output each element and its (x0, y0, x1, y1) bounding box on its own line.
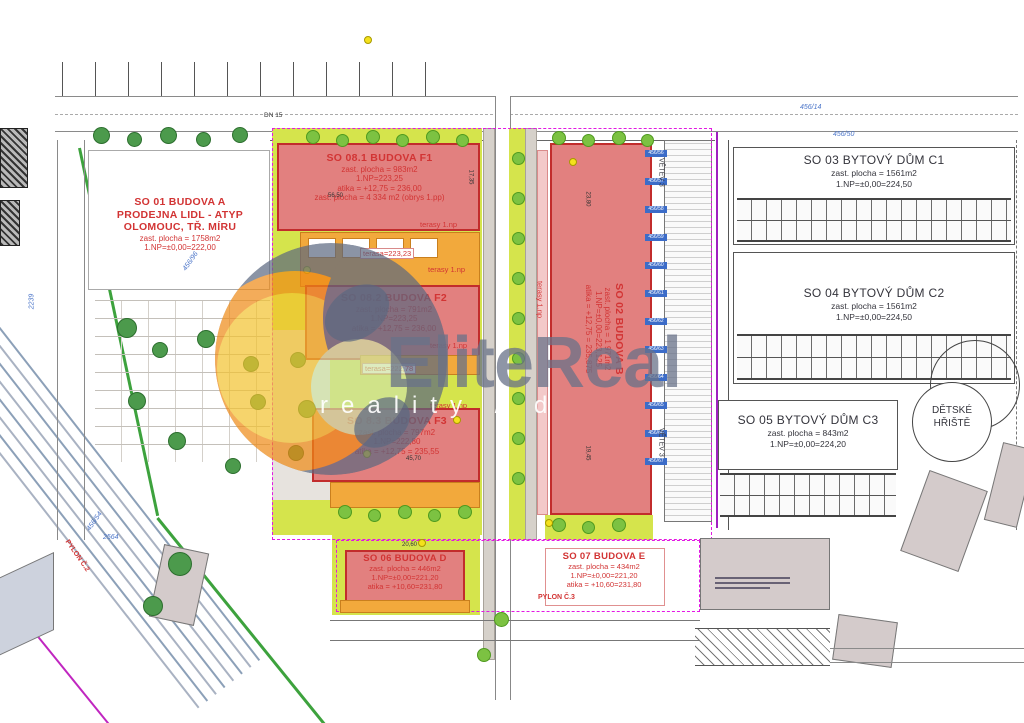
detske-line1: DĚTSKÉ (916, 405, 988, 418)
tree-icon (298, 400, 316, 418)
so07-title: SO 07 BUDOVA E (548, 551, 660, 562)
survey-tick (62, 62, 63, 96)
parcel-label: 456/14 (800, 104, 821, 111)
small-print-note (715, 577, 790, 592)
tree-icon (243, 356, 259, 372)
tree-icon (512, 272, 525, 285)
note-line (715, 587, 770, 589)
label-so07: SO 07 BUDOVA E zast. plocha = 434m2 1.NP… (548, 551, 660, 589)
detske-line2: HŘIŠTĚ (916, 418, 988, 431)
tree-icon (456, 134, 469, 147)
dn15-label: DN 15 (264, 112, 282, 119)
road-line (84, 140, 85, 540)
survey-tick (260, 62, 261, 96)
dimension-label: 19,45 (585, 445, 591, 460)
existing-building (832, 614, 898, 668)
so04-line2: zast. plocha = 1561m2 (740, 301, 1008, 312)
existing-building (984, 442, 1024, 528)
tree-icon (512, 232, 525, 245)
so01-line3: OLOMOUC, TŘ. MÍRU (92, 221, 268, 234)
tree-icon (512, 192, 525, 205)
existing-building (0, 552, 54, 658)
existing-building (0, 128, 28, 188)
survey-tick (95, 62, 96, 96)
survey-tick (161, 62, 162, 96)
tree-icon (366, 130, 380, 144)
existing-building (700, 538, 830, 610)
label-so03: SO 03 BYTOVÝ DŮM C1 zast. plocha = 1561m… (740, 153, 1008, 189)
tree-icon (160, 127, 177, 144)
tree-icon (396, 134, 409, 147)
survey-tick (326, 62, 327, 96)
road-line (55, 96, 1018, 97)
so01-title: SO 01 BUDOVA A (92, 196, 268, 209)
so05-module-strip (720, 473, 896, 517)
tree-icon (232, 127, 248, 143)
road-centerline (55, 114, 1018, 115)
tree-icon (290, 352, 306, 368)
road-line (830, 648, 1024, 649)
parcel-label: 2239 (28, 294, 35, 310)
so04-line3: 1.NP=±0,00=224,50 (740, 312, 1008, 323)
tree-icon (582, 134, 595, 147)
tree-icon (512, 472, 525, 485)
site-plan-canvas: SO 01 BUDOVA A PRODEJNA LIDL - ATYP OLOM… (0, 0, 1024, 723)
tree-icon (196, 132, 211, 147)
road-line (830, 662, 1024, 663)
survey-tick (392, 62, 393, 96)
terrace-so06 (340, 600, 470, 613)
utility-line-purple (30, 627, 113, 723)
so01-line5: 1.NP=±0,00=222,00 (92, 243, 268, 253)
label-so01: SO 01 BUDOVA A PRODEJNA LIDL - ATYP OLOM… (92, 196, 268, 253)
so07-line2: zast. plocha = 434m2 (548, 562, 660, 571)
so04-title: SO 04 BYTOVÝ DŮM C2 (740, 286, 1008, 301)
tree-icon (494, 612, 509, 627)
tree-icon (288, 445, 304, 461)
yellow-marker-icon (363, 450, 371, 458)
so03-module-strip (737, 198, 1011, 242)
tree-icon (197, 330, 215, 348)
tree-icon (612, 518, 626, 532)
survey-tick (359, 62, 360, 96)
so06-line4: atika = +10,60=231,80 (348, 582, 462, 591)
tree-icon (512, 352, 525, 365)
so05-line3: 1.NP=±0,00=224,20 (722, 439, 894, 450)
tree-icon (93, 127, 110, 144)
tree-icon (582, 521, 595, 534)
tree-icon (552, 131, 566, 145)
pylon3-label: PYLON Č.3 (538, 594, 575, 602)
so03-line3: 1.NP=±0,00=224,50 (740, 179, 1008, 190)
tree-icon (368, 509, 381, 522)
tree-icon (426, 130, 440, 144)
tree-icon (512, 432, 525, 445)
yellow-marker-icon (569, 158, 577, 166)
tree-icon (458, 505, 472, 519)
tree-icon (552, 518, 566, 532)
road-line (330, 640, 700, 641)
playground-label: DĚTSKÉ HŘIŠTĚ (916, 405, 988, 430)
tree-icon (338, 505, 352, 519)
dimension-label: 17,35 (468, 169, 474, 184)
note-line (715, 577, 790, 579)
tree-icon (168, 432, 186, 450)
tree-icon (143, 596, 163, 616)
yellow-marker-icon (545, 519, 553, 527)
dimension-label: 56,50 (328, 193, 343, 199)
label-so06: SO 06 BUDOVA D zast. plocha = 446m2 1.NP… (348, 553, 462, 591)
parcel-label: 456/50 (833, 131, 854, 138)
existing-building (900, 470, 988, 572)
yellow-marker-icon (303, 266, 311, 274)
yellow-marker-icon (453, 416, 461, 424)
so06-line3: 1.NP=±0,00=221,20 (348, 573, 462, 582)
tree-icon (168, 552, 192, 576)
planning-boundary (272, 128, 712, 540)
so06-title: SO 06 BUDOVA D (348, 553, 462, 564)
tree-icon (512, 152, 525, 165)
yellow-marker-icon (418, 539, 426, 547)
tree-icon (127, 132, 142, 147)
tree-icon (336, 134, 349, 147)
tree-icon (306, 130, 320, 144)
survey-tick (227, 62, 228, 96)
so05-line2: zast. plocha = 843m2 (722, 428, 894, 439)
tree-icon (477, 648, 491, 662)
note-line (715, 582, 790, 584)
label-so05: SO 05 BYTOVÝ DŮM C3 zast. plocha = 843m2… (722, 413, 894, 449)
tree-icon (512, 312, 525, 325)
module-mid-line (737, 220, 1011, 221)
parcel-label: 2564 (103, 534, 119, 541)
yellow-marker-icon (364, 36, 372, 44)
survey-tick (293, 62, 294, 96)
so06-line2: zast. plocha = 446m2 (348, 564, 462, 573)
tree-icon (612, 131, 626, 145)
dimension-label: 20,60 (402, 542, 417, 548)
tree-icon (428, 509, 441, 522)
parcel-line (728, 140, 729, 530)
so05-title: SO 05 BYTOVÝ DŮM C3 (722, 413, 894, 428)
survey-tick (425, 62, 426, 96)
dimension-label: 23,80 (585, 191, 591, 206)
label-so04: SO 04 BYTOVÝ DŮM C2 zast. plocha = 1561m… (740, 286, 1008, 322)
survey-tick (194, 62, 195, 96)
road-line (330, 620, 700, 621)
so03-title: SO 03 BYTOVÝ DŮM C1 (740, 153, 1008, 168)
crossing-hatch (695, 628, 830, 666)
road-line (57, 140, 58, 540)
so01-line4: zast. plocha = 1758m2 (92, 234, 268, 244)
so07-line4: atika = +10,60=231,80 (548, 580, 660, 589)
tree-icon (117, 318, 137, 338)
module-mid-line (720, 495, 896, 496)
tree-icon (512, 392, 525, 405)
tree-icon (398, 505, 412, 519)
tree-icon (641, 134, 654, 147)
tree-icon (250, 394, 266, 410)
dimension-label: 45,70 (406, 456, 421, 462)
tree-icon (128, 392, 146, 410)
so01-line2: PRODEJNA LIDL - ATYP (92, 209, 268, 222)
so07-line3: 1.NP=±0,00=221,20 (548, 571, 660, 580)
so03-line2: zast. plocha = 1561m2 (740, 168, 1008, 179)
survey-tick (128, 62, 129, 96)
tree-icon (152, 342, 168, 358)
existing-building (0, 200, 20, 246)
tree-icon (225, 458, 241, 474)
